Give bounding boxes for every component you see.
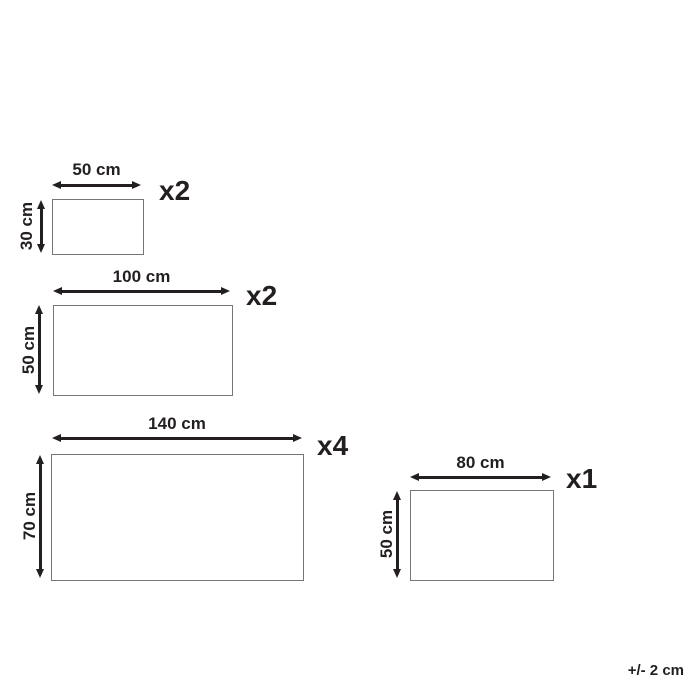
rectangle-outline [410,490,554,581]
width-label: 80 cm [410,454,551,472]
arrowhead-right-icon [542,473,551,481]
quantity-label: x1 [566,465,597,493]
arrow-line [396,495,399,574]
tolerance-note: +/- 2 cm [628,662,684,679]
dimensions-diagram: 50 cm 30 cm x2 100 cm 50 cm x2 [0,0,700,700]
arrowhead-down-icon [393,569,401,578]
height-label: 50 cm [378,504,396,564]
width-arrow [410,473,551,482]
arrow-line [414,476,547,479]
dimension-panel-80x50: 80 cm 50 cm x1 [0,0,700,700]
